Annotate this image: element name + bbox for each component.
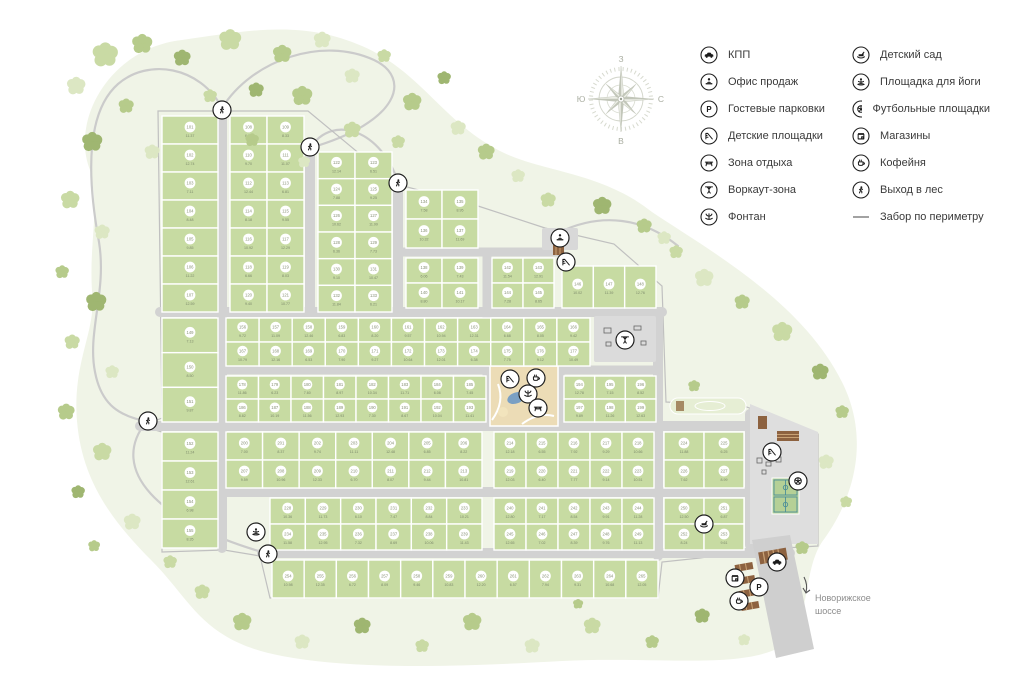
plot: 15312.61	[162, 461, 218, 490]
svg-text:225: 225	[721, 441, 729, 446]
plot: 1918.67	[389, 399, 422, 422]
plot: 13711.69	[442, 219, 478, 248]
plot: 2068.22	[445, 432, 482, 460]
svg-text:179: 179	[271, 382, 279, 387]
plot: 19311.41	[454, 399, 487, 422]
plot: 2378.69	[376, 524, 411, 550]
svg-text:233: 233	[461, 506, 469, 511]
forest-exit-icon	[139, 412, 157, 430]
sales-office-icon	[700, 73, 718, 91]
svg-text:139: 139	[457, 265, 465, 270]
svg-text:148: 148	[637, 282, 645, 287]
svg-text:249: 249	[635, 532, 643, 537]
svg-text:7.62: 7.62	[681, 478, 688, 482]
svg-text:10.06: 10.06	[425, 541, 434, 545]
plot: 1336.21	[355, 285, 392, 312]
svg-text:9.61: 9.61	[721, 541, 728, 545]
svg-text:7.58: 7.58	[421, 209, 428, 213]
svg-text:113: 113	[282, 181, 289, 186]
svg-text:101: 101	[187, 125, 195, 130]
svg-text:10.32: 10.32	[420, 238, 429, 242]
svg-text:10.92: 10.92	[244, 246, 253, 250]
plot: 1707.90	[325, 342, 358, 366]
svg-text:255: 255	[317, 574, 325, 579]
tree	[478, 144, 495, 160]
plot: 2106.70	[336, 460, 373, 488]
plot: 1309.10	[318, 259, 355, 286]
svg-text:110: 110	[245, 153, 252, 158]
plot: 2217.77	[558, 460, 590, 488]
svg-text:155: 155	[187, 528, 195, 533]
plot: 14312.91	[523, 258, 554, 283]
plot: 2578.09	[369, 560, 401, 598]
svg-text:7.92: 7.92	[571, 450, 578, 454]
svg-text:105: 105	[187, 237, 195, 242]
plot: 20912.33	[299, 460, 336, 488]
svg-text:11.11: 11.11	[350, 450, 358, 454]
plot: 26012.20	[465, 560, 497, 598]
svg-text:150: 150	[187, 365, 195, 370]
legend-label: Детские площадки	[728, 130, 823, 142]
svg-text:229: 229	[320, 506, 328, 511]
svg-text:168: 168	[272, 349, 280, 354]
plot: 1297.73	[355, 232, 392, 259]
plot: 23512.95	[305, 524, 340, 550]
plot: 1658.05	[524, 318, 557, 342]
plot: 1159.55	[267, 200, 304, 228]
plot: 1458.65	[523, 283, 554, 308]
plot: 1546.98	[162, 490, 218, 519]
svg-text:259: 259	[445, 574, 453, 579]
svg-text:12.33: 12.33	[313, 478, 322, 482]
svg-text:9.31: 9.31	[574, 583, 581, 587]
svg-text:7.94: 7.94	[542, 583, 549, 587]
masterplan-canvas: P	[0, 0, 1024, 682]
svg-text:12.16: 12.16	[271, 358, 280, 362]
plot: 1358.95	[442, 190, 478, 219]
svg-text:182: 182	[369, 382, 377, 387]
svg-text:8.95: 8.95	[457, 209, 464, 213]
plot: 11212.44	[230, 172, 267, 200]
svg-text:11.43: 11.43	[460, 541, 469, 545]
coffee-icon	[527, 369, 545, 387]
plot: 21412.18	[494, 432, 526, 460]
svg-text:140: 140	[421, 290, 429, 295]
svg-text:160: 160	[371, 325, 379, 330]
plot: 1037.11	[162, 172, 218, 200]
tree	[67, 77, 85, 95]
svg-text:205: 205	[424, 441, 432, 446]
playground-icon	[557, 253, 575, 271]
svg-text:7.02: 7.02	[539, 541, 546, 545]
plot: 15711.09	[259, 318, 292, 342]
svg-text:194: 194	[576, 382, 584, 387]
svg-text:8.84: 8.84	[426, 515, 433, 519]
svg-text:10.64: 10.64	[404, 358, 413, 362]
svg-text:11.07: 11.07	[281, 162, 290, 166]
plot: 1846.08	[421, 376, 454, 399]
football-icon	[852, 100, 862, 118]
svg-text:138: 138	[421, 265, 429, 270]
svg-text:120: 120	[245, 293, 253, 298]
plot: 2478.39	[558, 524, 590, 550]
svg-text:102: 102	[187, 153, 195, 158]
svg-text:10.51: 10.51	[634, 478, 643, 482]
svg-text:157: 157	[272, 325, 280, 330]
forest-exit-icon	[213, 101, 231, 119]
svg-text:8.37: 8.37	[277, 450, 284, 454]
plot: 1497.13	[162, 318, 218, 353]
plot: 2029.74	[299, 432, 336, 460]
legend-label: Забор по периметру	[880, 211, 984, 223]
svg-text:9.74: 9.74	[314, 450, 321, 454]
svg-text:247: 247	[571, 532, 579, 537]
svg-text:132: 132	[333, 293, 341, 298]
rest-area-icon	[700, 154, 718, 172]
tree	[451, 120, 466, 134]
plot: 12610.62	[318, 205, 355, 232]
svg-text:12.29: 12.29	[281, 246, 290, 250]
svg-text:231: 231	[390, 506, 398, 511]
plot: 22810.36	[270, 498, 305, 524]
svg-text:8.52: 8.52	[637, 391, 644, 395]
svg-text:10.94: 10.94	[437, 334, 446, 338]
svg-text:9.57: 9.57	[405, 334, 412, 338]
plot: 2229.14	[590, 460, 622, 488]
svg-text:206: 206	[460, 441, 468, 446]
plot: 1696.53	[292, 342, 325, 366]
svg-text:8.97: 8.97	[336, 391, 343, 395]
svg-text:169: 169	[305, 349, 313, 354]
legend-item-rest-area: Зона отдыха	[700, 154, 838, 171]
svg-text:9.29: 9.29	[603, 450, 610, 454]
tree	[71, 485, 84, 498]
plot: 20311.11	[336, 432, 373, 460]
playground-icon	[700, 127, 718, 145]
svg-text:209: 209	[314, 469, 322, 474]
plot: 20412.48	[372, 432, 409, 460]
svg-text:165: 165	[537, 325, 545, 330]
forest-exit-icon	[301, 138, 319, 156]
svg-text:189: 189	[336, 405, 344, 410]
svg-text:188: 188	[304, 405, 312, 410]
legend-label: Площадка для йоги	[880, 76, 981, 88]
svg-text:213: 213	[460, 469, 468, 474]
svg-text:244: 244	[635, 506, 643, 511]
svg-text:198: 198	[607, 405, 615, 410]
plot: 2206.40	[526, 460, 558, 488]
plot: 2467.02	[526, 524, 558, 550]
svg-text:123: 123	[370, 160, 378, 165]
svg-text:6.40: 6.40	[539, 478, 546, 482]
plot: 2007.00	[226, 432, 263, 460]
svg-text:117: 117	[282, 237, 289, 242]
plot: 12711.99	[355, 205, 392, 232]
svg-text:250: 250	[681, 506, 689, 511]
svg-text:12.03: 12.03	[506, 478, 515, 482]
svg-text:10.96: 10.96	[276, 478, 285, 482]
plot: 1109.70	[230, 144, 267, 172]
svg-text:218: 218	[635, 441, 643, 446]
plot: 24012.80	[494, 498, 526, 524]
svg-text:6.68: 6.68	[504, 334, 511, 338]
plot: 2156.55	[526, 432, 558, 460]
svg-text:10.47: 10.47	[369, 276, 378, 280]
plot: 2328.84	[411, 498, 446, 524]
plot: 1347.58	[406, 190, 442, 219]
plot: 1048.48	[162, 200, 218, 228]
plot: 1868.82	[226, 399, 259, 422]
svg-text:12.05: 12.05	[637, 583, 646, 587]
compass-left: Ю	[577, 94, 586, 104]
svg-text:163: 163	[471, 325, 479, 330]
linear-park	[670, 398, 746, 414]
svg-text:203: 203	[351, 441, 359, 446]
svg-text:12.59: 12.59	[186, 302, 195, 306]
svg-text:181: 181	[336, 382, 344, 387]
svg-text:9.59: 9.59	[241, 478, 248, 482]
svg-text:7.00: 7.00	[241, 450, 248, 454]
football-icon	[789, 472, 807, 490]
svg-text:11.41: 11.41	[465, 414, 474, 418]
plot: 19811.26	[595, 399, 626, 422]
svg-text:254: 254	[285, 574, 293, 579]
tree	[88, 540, 100, 551]
svg-text:12.95: 12.95	[319, 541, 328, 545]
fountain-icon	[700, 208, 718, 226]
legend-item-shops: Магазины	[852, 127, 990, 144]
plot: 1608.20	[358, 318, 391, 342]
svg-text:11.86: 11.86	[238, 391, 247, 395]
legend-label: Гостевые парковки	[728, 103, 825, 115]
svg-text:6.53: 6.53	[305, 358, 312, 362]
plot: 18311.71	[389, 376, 422, 399]
compass-bottom: В	[618, 136, 624, 146]
svg-text:11.73: 11.73	[319, 515, 328, 519]
svg-text:111: 111	[282, 153, 289, 158]
plot: 22310.51	[622, 460, 654, 488]
svg-text:227: 227	[721, 469, 729, 474]
plot: 12110.77	[267, 284, 304, 312]
highway-callout: Новорижское шоссе	[803, 577, 871, 616]
plot: 20810.96	[263, 460, 300, 488]
plot: 24911.13	[622, 524, 654, 550]
plot: 1558.35	[162, 519, 218, 548]
svg-text:7.15: 7.15	[607, 391, 614, 395]
svg-text:144: 144	[504, 290, 512, 295]
svg-text:256: 256	[349, 574, 357, 579]
svg-text:11.58: 11.58	[283, 541, 292, 545]
legend-item-parking: Гостевые парковки	[700, 100, 838, 117]
svg-text:172: 172	[405, 349, 413, 354]
tree	[93, 42, 118, 66]
plot: 15211.24	[162, 432, 218, 461]
legend-item-coffee: Кофейня	[852, 154, 990, 171]
plot: 2439.91	[590, 498, 622, 524]
svg-text:6.51: 6.51	[370, 169, 377, 173]
svg-text:10.66: 10.66	[634, 450, 643, 454]
svg-text:248: 248	[603, 532, 611, 537]
svg-text:133: 133	[370, 293, 378, 298]
svg-text:149: 149	[187, 330, 195, 335]
plot: 1286.36	[318, 232, 355, 259]
svg-text:126: 126	[333, 213, 341, 218]
svg-text:162: 162	[438, 325, 446, 330]
sand-area	[498, 407, 508, 417]
svg-text:136: 136	[421, 228, 429, 233]
plot: 2179.29	[590, 432, 622, 460]
svg-text:8.99: 8.99	[721, 478, 728, 482]
svg-text:146: 146	[574, 282, 582, 287]
plot: 25910.83	[433, 560, 465, 598]
svg-text:6.06: 6.06	[421, 275, 428, 279]
plot: 1907.30	[356, 399, 389, 422]
svg-text:6.21: 6.21	[370, 303, 377, 307]
legend-label: Зона отдыха	[728, 157, 792, 169]
legend-label: Выход в лес	[880, 184, 943, 196]
svg-text:7.43: 7.43	[457, 275, 464, 279]
plot: 1447.28	[492, 283, 523, 308]
svg-text:9.85: 9.85	[187, 246, 194, 250]
svg-text:6.57: 6.57	[510, 583, 517, 587]
plot: 11610.92	[230, 228, 267, 256]
coffee-icon	[730, 592, 748, 610]
svg-text:6.66: 6.66	[245, 274, 252, 278]
yoga-icon	[247, 523, 265, 541]
plot: 19412.78	[564, 376, 595, 399]
legend-label: Воркаут-зона	[728, 184, 796, 196]
svg-text:246: 246	[539, 532, 547, 537]
svg-text:7.75: 7.75	[504, 358, 511, 362]
svg-text:8.80: 8.80	[421, 300, 428, 304]
svg-text:164: 164	[504, 325, 512, 330]
svg-text:11.69: 11.69	[456, 238, 465, 242]
plot: 1857.45	[454, 376, 487, 399]
plot: 21912.03	[494, 460, 526, 488]
svg-text:212: 212	[424, 469, 432, 474]
plot: 2118.07	[372, 460, 409, 488]
svg-text:215: 215	[539, 441, 547, 446]
car-icon	[768, 553, 786, 571]
svg-text:8.22: 8.22	[460, 450, 467, 454]
svg-text:6.83: 6.83	[338, 334, 345, 338]
svg-text:200: 200	[241, 441, 249, 446]
svg-text:201: 201	[277, 441, 285, 446]
plot: 22411.88	[664, 432, 704, 460]
svg-text:9.25: 9.25	[370, 196, 377, 200]
tree	[55, 265, 68, 278]
svg-text:10.62: 10.62	[332, 223, 341, 227]
svg-text:12.65: 12.65	[506, 541, 515, 545]
plot: 17710.49	[557, 342, 590, 366]
svg-text:9.89: 9.89	[576, 414, 583, 418]
plot: 1209.40	[230, 284, 267, 312]
plot: 10712.59	[162, 284, 218, 312]
plot: 2306.10	[341, 498, 376, 524]
svg-text:106: 106	[187, 265, 195, 270]
svg-text:129: 129	[370, 240, 378, 245]
svg-text:10.34: 10.34	[368, 391, 377, 395]
svg-text:6.85: 6.85	[424, 450, 431, 454]
svg-text:8.05: 8.05	[537, 334, 544, 338]
svg-text:208: 208	[277, 469, 285, 474]
svg-text:170: 170	[338, 349, 346, 354]
svg-text:103: 103	[187, 181, 195, 186]
plot: 1818.97	[324, 376, 357, 399]
svg-text:9.42: 9.42	[570, 334, 577, 338]
highway-name-line2: шоссе	[815, 606, 841, 616]
svg-text:184: 184	[434, 382, 442, 387]
playground-icon	[763, 443, 781, 461]
svg-text:10.77: 10.77	[281, 302, 290, 306]
svg-text:187: 187	[271, 405, 279, 410]
legend-item-fountain: Фонтан	[700, 208, 838, 225]
svg-text:12.46: 12.46	[304, 334, 313, 338]
svg-text:6.55: 6.55	[539, 450, 546, 454]
plot: 2079.59	[226, 460, 263, 488]
svg-text:261: 261	[510, 574, 518, 579]
svg-text:125: 125	[370, 187, 378, 192]
svg-text:6.98: 6.98	[187, 509, 194, 513]
svg-text:122: 122	[333, 160, 341, 165]
svg-text:11.09: 11.09	[271, 334, 280, 338]
plot: 22911.73	[305, 498, 340, 524]
svg-text:193: 193	[466, 405, 474, 410]
svg-text:166: 166	[570, 325, 578, 330]
plot: 2616.57	[497, 560, 529, 598]
svg-text:8.82: 8.82	[239, 414, 246, 418]
plot: 13211.84	[318, 285, 355, 312]
plot: 16710.79	[226, 342, 259, 366]
playground-icon	[501, 370, 519, 388]
plot: 1968.52	[625, 376, 656, 399]
svg-text:7.73: 7.73	[370, 249, 377, 253]
compass-right: С	[658, 94, 664, 104]
plot: 2428.54	[558, 498, 590, 524]
svg-text:204: 204	[387, 441, 395, 446]
svg-text:137: 137	[457, 228, 465, 233]
plot: 13110.47	[355, 259, 392, 286]
plot: 14812.76	[625, 266, 656, 308]
legend-label: Офис продаж	[728, 76, 798, 88]
svg-text:7.28: 7.28	[504, 300, 511, 304]
plot: 18710.19	[259, 399, 292, 422]
svg-text:8.48: 8.48	[187, 218, 194, 222]
svg-text:10.19: 10.19	[270, 414, 279, 418]
svg-text:6.87: 6.87	[721, 515, 728, 519]
workout-icon	[616, 331, 634, 349]
plot: 1957.15	[595, 376, 626, 399]
legend-column-2: Детский садПлощадка для йогиФутбольные п…	[852, 46, 990, 235]
parking-icon	[700, 100, 718, 118]
svg-text:235: 235	[320, 532, 328, 537]
svg-text:8.07: 8.07	[387, 478, 394, 482]
svg-text:7.77: 7.77	[571, 478, 578, 482]
plot: 23310.21	[447, 498, 482, 524]
plot: 24411.28	[622, 498, 654, 524]
svg-text:174: 174	[471, 349, 479, 354]
svg-text:156: 156	[239, 325, 247, 330]
svg-text:241: 241	[539, 506, 547, 511]
plot: 2627.94	[529, 560, 561, 598]
svg-text:221: 221	[571, 469, 579, 474]
svg-text:159: 159	[338, 325, 346, 330]
highway-name-line1: Новорижское	[815, 593, 871, 603]
plot: 21810.66	[622, 432, 654, 460]
svg-text:142: 142	[504, 265, 512, 270]
plot: 1247.88	[318, 179, 355, 206]
plot: 2267.62	[664, 460, 704, 488]
